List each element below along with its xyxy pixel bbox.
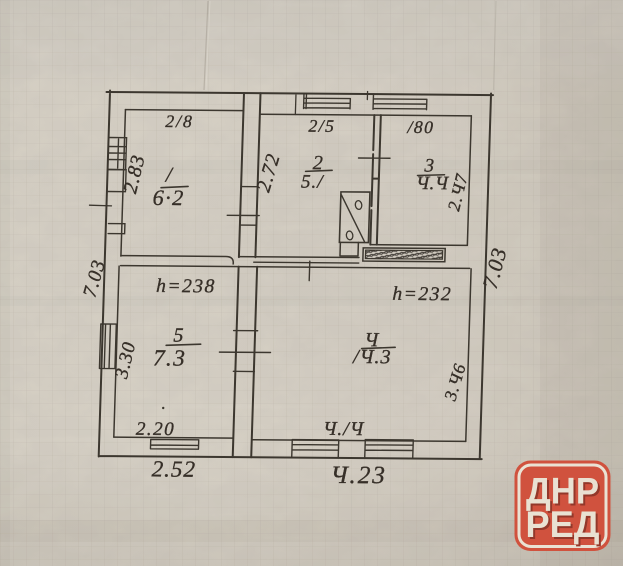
svg-text:6·2: 6·2 — [152, 185, 185, 210]
svg-text:h=238: h=238 — [156, 276, 216, 297]
svg-text:Ч.Ч: Ч.Ч — [416, 173, 449, 194]
svg-text:2.20: 2.20 — [136, 419, 176, 440]
svg-text:/80: /80 — [406, 117, 434, 137]
svg-text:2/8: 2/8 — [165, 111, 194, 131]
svg-text:7.3: 7.3 — [153, 345, 187, 370]
svg-text:5: 5 — [173, 325, 184, 347]
svg-text:Ч.23: Ч.23 — [330, 462, 387, 489]
svg-text:2.52: 2.52 — [151, 456, 196, 481]
svg-text:/Ч.3: /Ч.3 — [352, 346, 392, 368]
svg-text:Ч./Ч: Ч./Ч — [323, 419, 365, 440]
svg-text:5./: 5./ — [301, 172, 325, 193]
svg-text:h=232: h=232 — [392, 284, 452, 305]
svg-text:2/5: 2/5 — [308, 116, 335, 136]
svg-text:РЕД: РЕД — [526, 504, 600, 545]
